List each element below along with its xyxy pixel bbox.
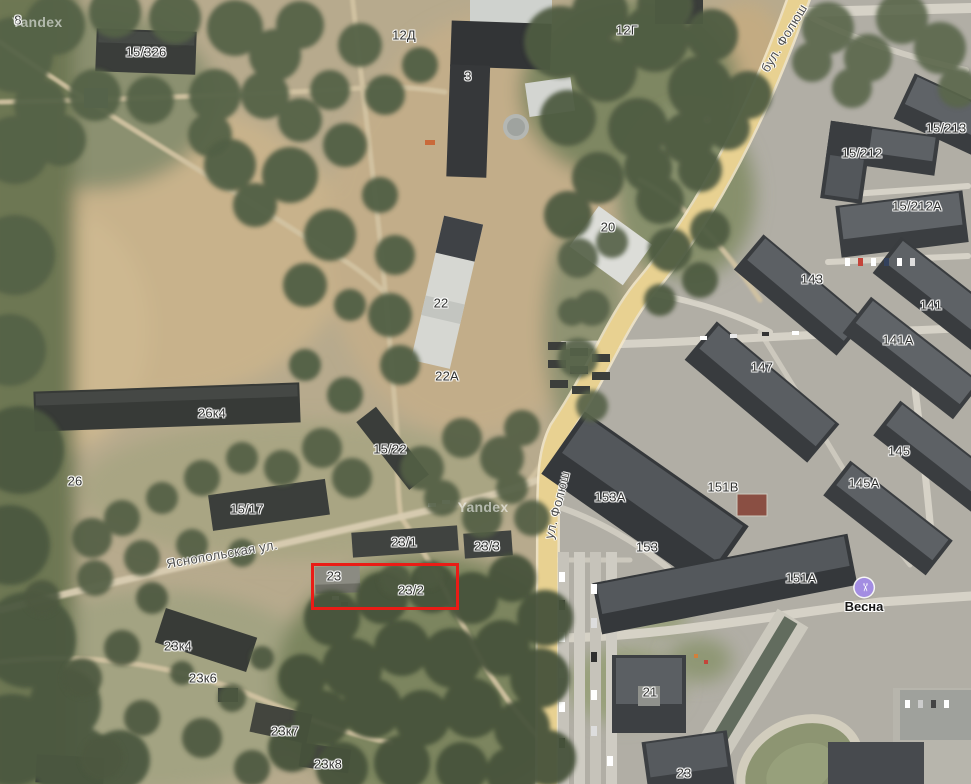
scissors-icon[interactable]: ✂ — [854, 578, 873, 597]
poi-label: Весна — [845, 599, 884, 614]
highlight-rectangle — [311, 563, 459, 610]
satellite-map[interactable]: ✂ Весна 815/32612Д312Г202222А26к415/2226… — [0, 0, 971, 784]
map-imagery — [0, 0, 971, 784]
poi-vesna[interactable]: ✂ Весна — [845, 578, 884, 614]
